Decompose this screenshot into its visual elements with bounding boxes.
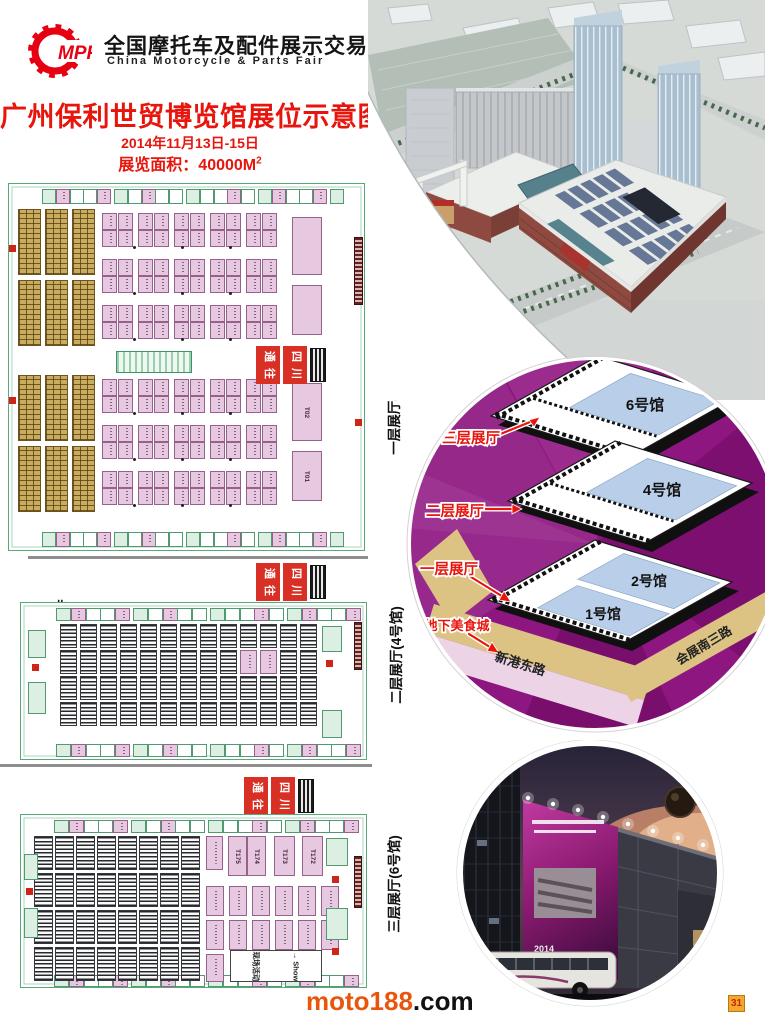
activity-area: 现场活动→ Show <box>230 950 322 982</box>
booth <box>102 230 117 247</box>
booth <box>138 471 153 488</box>
booth-label: T01 <box>293 452 321 500</box>
booth <box>102 213 117 230</box>
booth <box>118 442 133 459</box>
perimeter-booth <box>148 744 163 757</box>
perimeter-booth <box>128 189 142 204</box>
standard-booth-block <box>181 910 200 944</box>
standard-booth-block <box>76 947 95 981</box>
basement-callout: 地下美食城 <box>424 618 489 633</box>
floor2-callout: 二层展厅 <box>426 503 484 520</box>
perimeter-booth <box>225 608 240 621</box>
standard-booth-block <box>18 209 41 275</box>
standard-booth-block <box>240 676 257 700</box>
standard-booth-block <box>280 702 297 726</box>
booth <box>154 322 169 339</box>
column-dot <box>229 292 232 295</box>
perimeter-booth <box>114 189 128 204</box>
standard-booth-block <box>55 836 74 870</box>
perimeter-booth <box>214 532 228 547</box>
perimeter-booth <box>70 532 84 547</box>
booth <box>226 276 241 293</box>
booth <box>138 259 153 276</box>
perimeter-booth <box>133 744 148 757</box>
aerial-render-image <box>368 0 765 400</box>
booth <box>246 305 261 322</box>
perimeter-booth <box>56 744 71 757</box>
standard-booth-block <box>160 650 177 674</box>
area-label: 展览面积：40000M <box>118 157 256 174</box>
booth <box>174 322 189 339</box>
fire-point <box>332 948 339 955</box>
perimeter-booth <box>302 744 317 757</box>
perimeter-booth <box>287 744 302 757</box>
booth <box>246 259 261 276</box>
standard-booth-block <box>18 446 41 512</box>
booth <box>154 259 169 276</box>
side-room <box>28 682 46 714</box>
perimeter-booth <box>155 189 169 204</box>
perimeter-booth <box>114 532 128 547</box>
perimeter-booth <box>177 744 192 757</box>
escalator-sign-text: 通往 <box>256 346 280 384</box>
standard-booth-block <box>280 624 297 648</box>
large-booth: T175 <box>228 836 247 876</box>
standard-booth-block <box>220 624 237 648</box>
standard-booth-block <box>118 873 137 907</box>
escalator-sign: 通往四川 <box>256 345 326 385</box>
perimeter-booth <box>214 189 228 204</box>
booth <box>226 230 241 247</box>
site-name: moto188 <box>306 986 413 1016</box>
perimeter-booth <box>313 532 327 547</box>
booth <box>154 213 169 230</box>
booth <box>210 276 225 293</box>
perimeter-booth <box>163 608 178 621</box>
section-divider <box>0 764 372 767</box>
booth <box>118 322 133 339</box>
standard-booth-block <box>97 947 116 981</box>
booth <box>118 425 133 442</box>
perimeter-booth <box>267 820 282 833</box>
floor-stack-diagram: 6号馆 4号馆 2号馆 1号馆 <box>403 346 765 746</box>
column-dot <box>133 412 136 415</box>
standard-booth-block <box>280 650 297 674</box>
perimeter-booth <box>210 608 225 621</box>
perimeter-booth <box>84 820 99 833</box>
standard-booth-block <box>60 624 77 648</box>
booth <box>246 471 261 488</box>
booth-label: T172 <box>303 837 322 875</box>
standard-booth-block <box>140 650 157 674</box>
standard-booth-block <box>118 947 137 981</box>
large-booth <box>292 285 322 335</box>
hall-2-label: 2号馆 <box>631 573 667 589</box>
booth <box>102 425 117 442</box>
perimeter-booth <box>299 189 313 204</box>
standard-booth-block <box>120 676 137 700</box>
booth <box>246 396 261 413</box>
booth <box>174 276 189 293</box>
booth <box>210 471 225 488</box>
booth <box>154 425 169 442</box>
booth <box>190 471 205 488</box>
booth <box>102 305 117 322</box>
standard-booth-block <box>76 836 95 870</box>
standard-booth-block <box>97 836 116 870</box>
booth <box>190 396 205 413</box>
booth <box>102 488 117 505</box>
perimeter-booth <box>115 608 130 621</box>
booth <box>246 322 261 339</box>
booth <box>252 920 270 950</box>
perimeter-booth <box>142 532 156 547</box>
booth <box>174 396 189 413</box>
perimeter-booth <box>128 532 142 547</box>
booth <box>226 213 241 230</box>
booth <box>174 379 189 396</box>
perimeter-booth <box>344 820 359 833</box>
booth <box>298 920 316 950</box>
booth <box>226 488 241 505</box>
side-room <box>28 630 46 658</box>
booth <box>210 488 225 505</box>
perimeter-booth <box>317 608 332 621</box>
booth <box>210 322 225 339</box>
standard-booth-block <box>160 873 179 907</box>
perimeter-booth <box>186 189 200 204</box>
booth <box>262 230 277 247</box>
fire-point <box>32 664 39 671</box>
booth <box>138 396 153 413</box>
standard-booth-block <box>200 702 217 726</box>
standard-booth-block <box>60 650 77 674</box>
perimeter-booth <box>192 608 207 621</box>
booth <box>118 213 133 230</box>
fire-point <box>332 876 339 883</box>
booth <box>262 488 277 505</box>
booth <box>174 230 189 247</box>
fire-point <box>26 888 33 895</box>
booth <box>206 886 224 916</box>
column-dot <box>181 246 184 249</box>
standard-booth-block <box>181 873 200 907</box>
standard-booth-block <box>260 702 277 726</box>
perimeter-booth <box>56 608 71 621</box>
perimeter-booth <box>330 532 344 547</box>
standard-booth-block <box>280 676 297 700</box>
column-dot <box>181 458 184 461</box>
perimeter-booth <box>286 532 300 547</box>
booth <box>102 442 117 459</box>
perimeter-booth <box>69 820 84 833</box>
booth <box>246 276 261 293</box>
booth <box>118 396 133 413</box>
booth <box>174 471 189 488</box>
perimeter-booth <box>100 744 115 757</box>
booth <box>118 305 133 322</box>
perimeter-booth <box>240 744 255 757</box>
standard-booth-block <box>140 676 157 700</box>
perimeter-booth <box>254 608 269 621</box>
standard-booth-block <box>140 624 157 648</box>
standard-booth-block <box>80 702 97 726</box>
perimeter-booth <box>272 532 286 547</box>
standard-booth-block <box>72 375 95 441</box>
escalator-sign: 通往四川 <box>244 776 314 816</box>
perimeter-booth <box>208 820 223 833</box>
standard-booth-block <box>76 910 95 944</box>
booth <box>226 425 241 442</box>
booth <box>226 396 241 413</box>
perimeter-booth <box>97 532 111 547</box>
standard-booth-block <box>120 650 137 674</box>
standard-booth-block <box>139 873 158 907</box>
hall-4-label: 4号馆 <box>643 481 681 499</box>
escalator-sign-text: 四川 <box>283 346 307 384</box>
booth <box>174 213 189 230</box>
standard-booth-block <box>181 836 200 870</box>
booth <box>190 442 205 459</box>
standard-booth-block <box>300 702 317 726</box>
booth <box>138 322 153 339</box>
booth <box>138 276 153 293</box>
side-room <box>326 838 348 866</box>
booth <box>262 471 277 488</box>
perimeter-booth <box>83 189 97 204</box>
glass-tower <box>574 26 622 174</box>
booth <box>138 425 153 442</box>
standard-booth-block <box>55 947 74 981</box>
perimeter-booth <box>142 189 156 204</box>
standard-booth-block <box>180 676 197 700</box>
hall-6-label: 6号馆 <box>626 396 664 414</box>
standard-booth-block <box>100 676 117 700</box>
perimeter-booth <box>83 532 97 547</box>
perimeter-booth <box>299 532 313 547</box>
booth <box>118 259 133 276</box>
booth <box>174 425 189 442</box>
standard-booth-block <box>60 702 77 726</box>
booth <box>102 322 117 339</box>
booth <box>102 396 117 413</box>
booth <box>229 920 247 950</box>
booth <box>190 259 205 276</box>
standard-booth-block <box>120 702 137 726</box>
standard-booth-block <box>34 947 53 981</box>
side-room <box>322 710 342 738</box>
perimeter-booth <box>330 189 344 204</box>
side-room <box>24 908 38 938</box>
booth <box>190 305 205 322</box>
perimeter-booth <box>190 820 205 833</box>
booth-label: T02 <box>293 384 321 440</box>
perimeter-booth <box>71 744 86 757</box>
perimeter-booth <box>146 820 161 833</box>
perimeter-booth <box>169 532 183 547</box>
booth <box>190 230 205 247</box>
standard-booth-block <box>181 947 200 981</box>
standard-booth-block <box>139 947 158 981</box>
booth <box>210 230 225 247</box>
perimeter-booth <box>302 608 317 621</box>
booth <box>118 488 133 505</box>
page-title: 广州保利世贸博览馆展位示意图 <box>0 95 380 134</box>
night-photo: 2014 <box>428 740 764 1016</box>
area-sup: 2 <box>256 156 262 167</box>
booth <box>275 886 293 916</box>
booth <box>240 650 257 674</box>
perimeter-booth <box>71 608 86 621</box>
perimeter-booth <box>269 744 284 757</box>
column-dot <box>133 458 136 461</box>
standard-booth-block <box>97 873 116 907</box>
booth <box>154 396 169 413</box>
escalator-icon <box>310 348 326 382</box>
booth <box>246 213 261 230</box>
standard-booth-block <box>100 650 117 674</box>
registration-tables <box>116 351 192 373</box>
booth <box>138 305 153 322</box>
standard-booth-block <box>160 947 179 981</box>
perimeter-booth <box>227 532 241 547</box>
booth <box>262 322 277 339</box>
booth <box>262 442 277 459</box>
booth <box>118 230 133 247</box>
standard-booth-block <box>300 676 317 700</box>
booth <box>210 305 225 322</box>
fire-point <box>355 419 362 426</box>
floorplan-hall-4: 通往四川北▲ <box>6 560 372 763</box>
perimeter-booth <box>313 189 327 204</box>
standard-booth-block <box>220 650 237 674</box>
booth <box>138 488 153 505</box>
standard-booth-block <box>160 624 177 648</box>
standard-booth-block <box>97 910 116 944</box>
perimeter-booth <box>238 820 253 833</box>
booth-label: T174 <box>248 837 265 875</box>
booth <box>226 322 241 339</box>
booth-label: T173 <box>275 837 294 875</box>
perimeter-booth <box>252 820 267 833</box>
column-dot <box>229 504 232 507</box>
fire-point <box>9 245 16 252</box>
logo-text: MPF <box>58 43 92 64</box>
perimeter-booth <box>225 744 240 757</box>
booth <box>206 920 224 950</box>
column-dot <box>229 412 232 415</box>
perimeter-booth <box>86 608 101 621</box>
column-dot <box>181 292 184 295</box>
standard-booth-block <box>60 676 77 700</box>
perimeter-booth <box>200 532 214 547</box>
lit-sign <box>728 890 756 902</box>
booth <box>210 259 225 276</box>
perimeter-booth <box>346 608 361 621</box>
perimeter-booth <box>346 744 361 757</box>
standard-booth-block <box>300 650 317 674</box>
perimeter-booth <box>148 608 163 621</box>
booth <box>210 425 225 442</box>
perimeter-booth <box>98 820 113 833</box>
perimeter-booth <box>100 608 115 621</box>
booth <box>154 471 169 488</box>
floorplan-hall-1-2: T02T01通往四川 <box>6 183 372 555</box>
column-dot <box>229 338 232 341</box>
standard-booth-block <box>80 624 97 648</box>
booth <box>190 213 205 230</box>
booth <box>102 471 117 488</box>
standard-booth-block <box>220 702 237 726</box>
booth <box>262 396 277 413</box>
grandstand <box>354 622 362 670</box>
escalator-sign-text: 通往 <box>244 777 268 815</box>
booth <box>298 886 316 916</box>
booth <box>252 886 270 916</box>
column-dot <box>133 338 136 341</box>
perimeter-booth <box>223 820 238 833</box>
standard-booth-block <box>180 650 197 674</box>
booth <box>118 379 133 396</box>
booth <box>210 396 225 413</box>
perimeter-booth <box>272 189 286 204</box>
standard-booth-block <box>180 702 197 726</box>
escalator-sign-text: 四川 <box>283 563 307 601</box>
standard-booth-block <box>200 676 217 700</box>
booth <box>174 259 189 276</box>
floorplan-hall-6: 通往四川T175T174T173T172现场活动→ Show <box>6 768 372 996</box>
perimeter-booth <box>331 744 346 757</box>
perimeter-booth <box>70 189 84 204</box>
column-dot <box>229 246 232 249</box>
standard-booth-block <box>118 910 137 944</box>
perimeter-booth <box>42 532 56 547</box>
booth <box>190 425 205 442</box>
large-booth: T172 <box>302 836 323 876</box>
booth <box>190 276 205 293</box>
standard-booth-block <box>45 209 68 275</box>
standard-booth-block <box>72 446 95 512</box>
perimeter-booth <box>331 608 346 621</box>
large-booth <box>292 217 322 275</box>
perimeter-booth <box>258 532 272 547</box>
booth <box>154 442 169 459</box>
booth <box>210 379 225 396</box>
large-booth: T02 <box>292 383 322 441</box>
side-room <box>322 626 342 652</box>
booth <box>190 322 205 339</box>
perimeter-booth <box>258 189 272 204</box>
perimeter-booth <box>54 820 69 833</box>
standard-booth-block <box>45 375 68 441</box>
standard-booth-block <box>139 836 158 870</box>
standard-booth-block <box>55 910 74 944</box>
standard-booth-block <box>160 702 177 726</box>
floor1-callout: 一层展厅 <box>420 561 478 578</box>
perimeter-booth <box>192 744 207 757</box>
perimeter-booth <box>155 532 169 547</box>
perimeter-booth <box>200 189 214 204</box>
booth <box>102 276 117 293</box>
standard-booth-block <box>260 676 277 700</box>
escalator-sign: 通往四川 <box>256 562 326 602</box>
perimeter-booth <box>286 189 300 204</box>
standard-booth-block <box>80 650 97 674</box>
perimeter-booth <box>254 744 269 757</box>
perimeter-booth <box>315 820 330 833</box>
standard-booth-block <box>45 446 68 512</box>
standard-booth-block <box>200 650 217 674</box>
